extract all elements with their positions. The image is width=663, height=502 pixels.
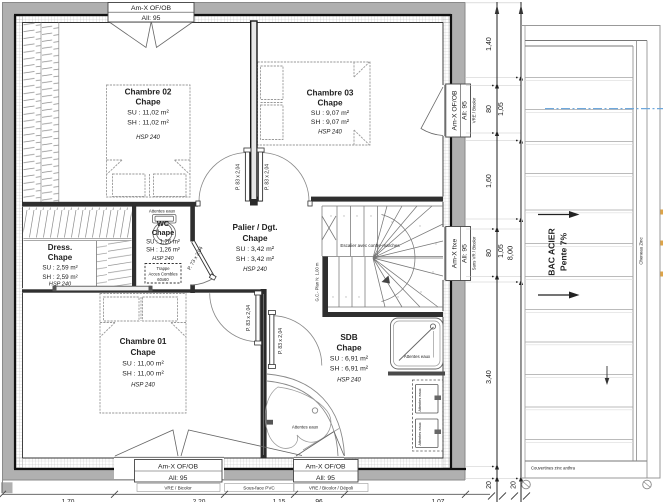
svg-text:Chambre 01: Chambre 01 xyxy=(120,337,167,346)
svg-text:Chape: Chape xyxy=(242,234,267,243)
svg-text:WC: WC xyxy=(157,219,170,228)
svg-text:BAC ACIER: BAC ACIER xyxy=(547,228,557,276)
svg-text:Am-X OF/OB: Am-X OF/OB xyxy=(452,90,459,130)
svg-text:P. 83 x 2,04: P. 83 x 2,04 xyxy=(278,328,284,354)
svg-text:Chape: Chape xyxy=(317,99,342,108)
svg-text:Cheneau Zinc: Cheneau Zinc xyxy=(639,237,644,265)
svg-text:96: 96 xyxy=(315,499,323,502)
svg-text:Trappe: Trappe xyxy=(156,266,170,271)
svg-text:Attentes eaux: Attentes eaux xyxy=(149,209,176,214)
svg-text:Attentes eaux: Attentes eaux xyxy=(418,422,422,445)
svg-text:Attentes eaux: Attentes eaux xyxy=(404,354,431,359)
svg-text:All: 95: All: 95 xyxy=(142,15,161,22)
svg-text:1,05: 1,05 xyxy=(498,244,505,258)
svg-text:Acces Combles: Acces Combles xyxy=(148,272,177,277)
svg-text:SH : 2,59 m²: SH : 2,59 m² xyxy=(42,274,77,281)
svg-text:SH : 3,42 m²: SH : 3,42 m² xyxy=(236,256,275,263)
svg-text:SU : 3,42 m²: SU : 3,42 m² xyxy=(236,246,275,253)
svg-text:60x60: 60x60 xyxy=(157,277,169,282)
svg-text:SU : 1,26 m²: SU : 1,26 m² xyxy=(146,240,180,246)
svg-text:HSP 240: HSP 240 xyxy=(136,135,160,141)
svg-text:Pente 7%: Pente 7% xyxy=(559,233,569,272)
svg-text:SH : 1,26 m²: SH : 1,26 m² xyxy=(146,248,180,254)
svg-text:VRE / Bicolor: VRE / Bicolor xyxy=(472,97,477,123)
svg-text:Chape: Chape xyxy=(135,98,160,107)
svg-text:SU : 6,91 m²: SU : 6,91 m² xyxy=(330,356,369,363)
svg-text:Chape: Chape xyxy=(152,228,175,237)
svg-text:Chape: Chape xyxy=(336,344,361,353)
svg-text:1,70: 1,70 xyxy=(62,499,75,502)
svg-text:All: 95: All: 95 xyxy=(169,475,188,482)
svg-text:All: 95: All: 95 xyxy=(316,475,335,482)
svg-text:Chambre 03: Chambre 03 xyxy=(307,89,354,98)
svg-text:HSP 240: HSP 240 xyxy=(337,378,361,384)
svg-text:HSP 240: HSP 240 xyxy=(131,383,155,389)
svg-text:Couvertines zinc anthra: Couvertines zinc anthra xyxy=(531,466,576,471)
svg-text:Sans VR / Bicolor: Sans VR / Bicolor xyxy=(472,236,477,270)
svg-text:VRE / Bicolor / Dépoli: VRE / Bicolor / Dépoli xyxy=(309,486,353,491)
svg-text:P. 83 x 2,04: P. 83 x 2,04 xyxy=(236,164,242,190)
svg-text:Dress.: Dress. xyxy=(48,243,72,252)
svg-text:1,60: 1,60 xyxy=(486,174,493,188)
svg-text:Chape: Chape xyxy=(48,253,73,262)
svg-text:1,15: 1,15 xyxy=(273,499,286,502)
svg-text:2,20: 2,20 xyxy=(193,499,206,502)
svg-text:SU : 9,07 m²: SU : 9,07 m² xyxy=(311,110,350,117)
svg-text:1,05: 1,05 xyxy=(498,102,505,116)
svg-text:SDB: SDB xyxy=(340,333,357,342)
svg-text:Am-X OF/OB: Am-X OF/OB xyxy=(305,464,345,471)
svg-text:Chape: Chape xyxy=(130,348,155,357)
svg-text:HSP 240: HSP 240 xyxy=(318,130,342,136)
svg-text:20: 20 xyxy=(486,481,493,489)
svg-text:Am-X OF/OB: Am-X OF/OB xyxy=(158,464,198,471)
svg-text:SU : 2,59 m²: SU : 2,59 m² xyxy=(42,265,77,272)
svg-text:SH : 6,91 m²: SH : 6,91 m² xyxy=(330,366,369,373)
svg-text:80: 80 xyxy=(486,105,493,113)
svg-text:All: 95: All: 95 xyxy=(461,101,468,120)
svg-text:Am-X fixe: Am-X fixe xyxy=(452,239,459,269)
svg-text:SH : 9,07 m²: SH : 9,07 m² xyxy=(311,119,350,126)
svg-text:SH : 11,02 m²: SH : 11,02 m² xyxy=(127,120,169,127)
svg-text:80: 80 xyxy=(486,249,493,257)
svg-text:1,40: 1,40 xyxy=(486,37,493,51)
svg-text:HSP 240: HSP 240 xyxy=(152,256,173,262)
svg-text:All: 95: All: 95 xyxy=(461,244,468,263)
svg-text:SU : 11,02 m²: SU : 11,02 m² xyxy=(127,110,169,117)
svg-text:8,00: 8,00 xyxy=(506,246,515,260)
svg-text:HSP 240: HSP 240 xyxy=(243,267,267,273)
svg-text:Escalier avec contre-marches: Escalier avec contre-marches xyxy=(340,243,400,248)
svg-text:Am-X OF/OB: Am-X OF/OB xyxy=(131,5,171,12)
svg-text:Palier / Dgt.: Palier / Dgt. xyxy=(232,223,277,232)
svg-text:1,07: 1,07 xyxy=(432,499,445,502)
svg-text:P. 83 x 2,04: P. 83 x 2,04 xyxy=(246,305,252,331)
svg-text:G.C.- Plan N: 1,00 m: G.C.- Plan N: 1,00 m xyxy=(315,262,320,301)
svg-text:Attentes eaux: Attentes eaux xyxy=(292,425,319,430)
svg-text:SU : 11,00 m²: SU : 11,00 m² xyxy=(122,361,164,368)
svg-text:P. 83 x 2,04: P. 83 x 2,04 xyxy=(265,164,271,190)
svg-text:Chambre 02: Chambre 02 xyxy=(125,88,172,97)
svg-text:SH : 11,00 m²: SH : 11,00 m² xyxy=(122,371,164,378)
svg-text:Attentes eaux: Attentes eaux xyxy=(418,388,422,411)
svg-text:Sous-face PVC: Sous-face PVC xyxy=(243,486,275,491)
svg-text:3,40: 3,40 xyxy=(486,370,493,384)
svg-text:VRE / Bicolor: VRE / Bicolor xyxy=(164,486,192,491)
svg-text:20: 20 xyxy=(511,481,518,489)
